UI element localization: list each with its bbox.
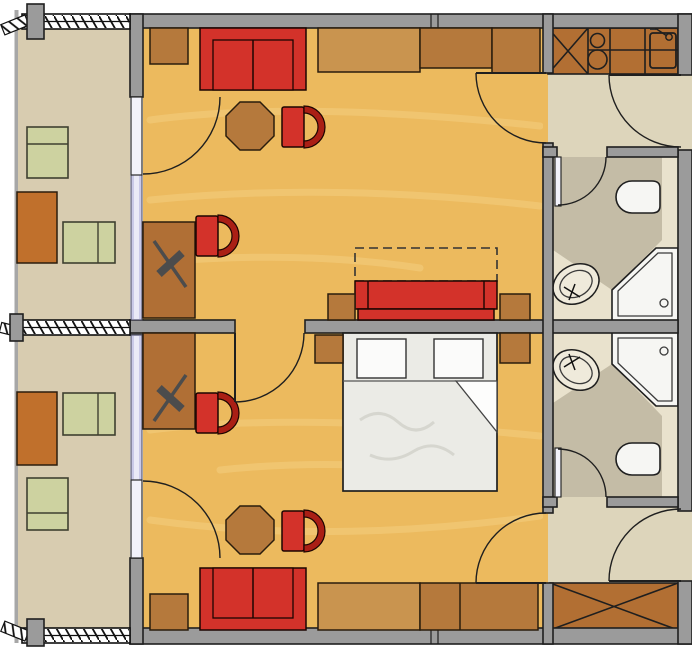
wardrobe-section-b <box>492 28 540 73</box>
entry-threshold-lower <box>678 509 692 581</box>
double-lounger <box>63 393 115 435</box>
wall-bath-upper-stub <box>543 147 557 157</box>
hall-wardrobe-x <box>550 583 678 630</box>
desk-chair <box>196 215 239 257</box>
wall-rooms-right-a <box>543 14 553 73</box>
wall-right-a <box>678 14 692 75</box>
red-sofa <box>200 568 306 630</box>
wall-middle-right <box>305 320 678 333</box>
octagon-table <box>226 102 274 150</box>
wall-right-b <box>678 150 692 511</box>
day-bed-seat <box>358 309 494 320</box>
bathroom-upper-door-leaf <box>555 157 561 206</box>
sideboard <box>318 583 420 630</box>
tub-chair <box>282 106 325 148</box>
side-table <box>150 594 188 630</box>
flank-table-right <box>500 294 530 320</box>
wall-rooms-right-c <box>543 583 553 644</box>
nightstand-left <box>315 335 343 363</box>
tub-chair <box>282 510 325 552</box>
lounge-chair <box>27 478 68 530</box>
railing-post-bottom <box>27 619 44 646</box>
balcony-door-lower-leaf <box>131 480 142 558</box>
toilet-upper <box>616 181 660 213</box>
lounge-chair <box>27 127 68 178</box>
nightstand-right <box>500 333 530 363</box>
bathroom-lower <box>546 332 678 497</box>
sideboard <box>318 28 420 72</box>
wall-bath-upper <box>607 147 678 157</box>
red-sofa <box>200 28 306 90</box>
wardrobe-section-a <box>420 28 492 68</box>
wall-middle-left <box>130 320 235 333</box>
balcony-table <box>17 192 57 263</box>
floor-plan-page <box>0 0 692 648</box>
desk <box>143 333 195 429</box>
railing-post-middle <box>10 314 23 341</box>
wall-bath-lower-stub <box>543 497 557 507</box>
bathroom-lower-door-leaf <box>555 448 561 497</box>
double-lounger <box>63 222 115 263</box>
wall-top <box>130 14 692 28</box>
bathroom-upper <box>546 157 678 322</box>
balcony-door-upper-leaf <box>131 97 142 175</box>
side-table <box>150 28 188 64</box>
pillow-left <box>357 339 406 378</box>
wall-left-a <box>130 14 143 97</box>
railing-post-top <box>27 4 44 39</box>
balcony-table <box>17 392 57 465</box>
floor-plan-drawing <box>0 0 692 648</box>
entry-threshold-upper <box>678 75 692 150</box>
desk-chair <box>196 392 239 434</box>
toilet-lower <box>616 443 660 475</box>
wall-bath-lower <box>607 497 678 507</box>
kitchenette <box>548 24 678 74</box>
pillow-right <box>434 339 483 378</box>
wall-right-c <box>678 581 692 644</box>
octagon-table <box>226 506 274 554</box>
day-bed-back <box>355 281 497 309</box>
wall-rooms-right-b <box>543 143 553 513</box>
flank-table-left <box>328 294 355 320</box>
wardrobe <box>420 583 538 630</box>
wall-left-b <box>130 558 143 644</box>
